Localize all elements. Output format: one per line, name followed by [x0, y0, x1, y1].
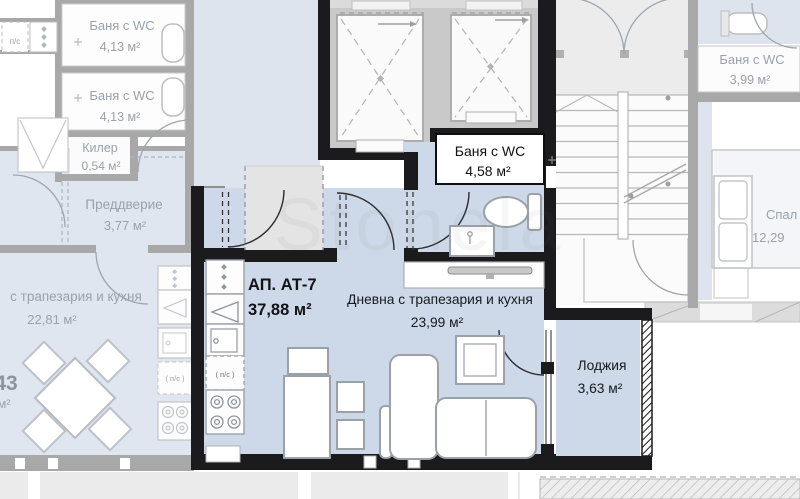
pillow: [719, 181, 747, 219]
living-name: Дневна с трапезария и кухня: [347, 292, 533, 307]
stair-upper-landing: [556, 0, 688, 95]
wardrobe: [284, 376, 330, 458]
cabinet-dots-icon: [41, 26, 47, 48]
right-bedroom-name: Спал: [766, 207, 797, 222]
apartment-area: 37,88 м²: [248, 301, 312, 319]
featured-washer-label: ( п/с ): [215, 370, 235, 379]
elevator-left: [330, 8, 430, 152]
living-area: 23,99 м²: [411, 315, 464, 330]
toilet-icon: [162, 24, 184, 62]
neighbor-balcony-hatch: [540, 479, 800, 499]
cabinet: [288, 348, 328, 374]
left-bath2-name: Баня с WC: [89, 88, 154, 103]
side-table: [337, 420, 364, 449]
right-bedroom-area: 12,29: [752, 230, 785, 245]
loggia-name: Лоджия: [578, 358, 627, 373]
left-wardrobe: [18, 118, 68, 172]
left-bath1-name: Баня с WC: [89, 18, 154, 33]
side-table: [337, 382, 364, 412]
right-bath-name: Баня с WC: [719, 52, 784, 67]
bath-name: Баня с WC: [455, 143, 525, 159]
left-vestibule-name: Преддверие: [85, 197, 162, 212]
loggia-area: 3,63 м²: [578, 381, 623, 396]
left-apartment: ( п/с ) Баня с WC 4,13 м² Баня с WC 4,13…: [0, 0, 194, 471]
left-closet-name: Килер: [82, 141, 118, 155]
toilet-icon: [162, 78, 184, 116]
right-corridor-floor: [698, 102, 712, 300]
facade-strip: [0, 472, 520, 499]
bed: [714, 176, 752, 268]
left-living-area: 22,81 м²: [27, 312, 77, 327]
tv-icon: [448, 267, 532, 274]
coffee-table: [456, 336, 504, 384]
left-living-name: с трапезария и кухня: [10, 289, 142, 304]
left-bath1-area: 4,13 м²: [100, 40, 141, 54]
elevator-right: [444, 8, 538, 128]
entrance-lobby: [194, 0, 321, 191]
floor-plan-canvas: ( п/с ) Баня с WC 4,13 м² Баня с WC 4,13…: [0, 0, 800, 499]
right-bath-area: 3,99 м²: [730, 73, 771, 87]
living-furniture: [284, 336, 536, 459]
left-unit-number: 43: [0, 372, 18, 395]
window: [206, 446, 240, 462]
left-kitchen-strip: ( п/с ): [158, 266, 192, 440]
left-closet-area: 0,54 м²: [82, 159, 121, 173]
apartment-id: АП. АТ-7: [248, 276, 317, 294]
loggia-railing: [642, 320, 652, 456]
left-washer2-label: ( п/с ): [165, 374, 185, 383]
window: [364, 456, 376, 468]
sofa-chaise: [390, 355, 438, 459]
left-unit-number-unit: м²: [0, 396, 11, 411]
kitchen-sink-icon: [211, 329, 237, 352]
pillow: [719, 223, 747, 261]
floor-plan: ( п/с ) Баня с WC 4,13 м² Баня с WC 4,13…: [0, 0, 800, 499]
bath-area: 4,58 м²: [465, 163, 511, 179]
lobby-floor: [194, 0, 320, 188]
left-bath2-area: 4,13 м²: [100, 110, 141, 124]
watermark: Stonela: [274, 183, 567, 266]
left-vestibule-area: 3,77 м²: [104, 218, 147, 233]
stair-rail: [618, 92, 628, 239]
featured-kitchen-strip: ( п/с ): [206, 260, 244, 434]
left-washer-top-label: п/с: [10, 37, 21, 46]
